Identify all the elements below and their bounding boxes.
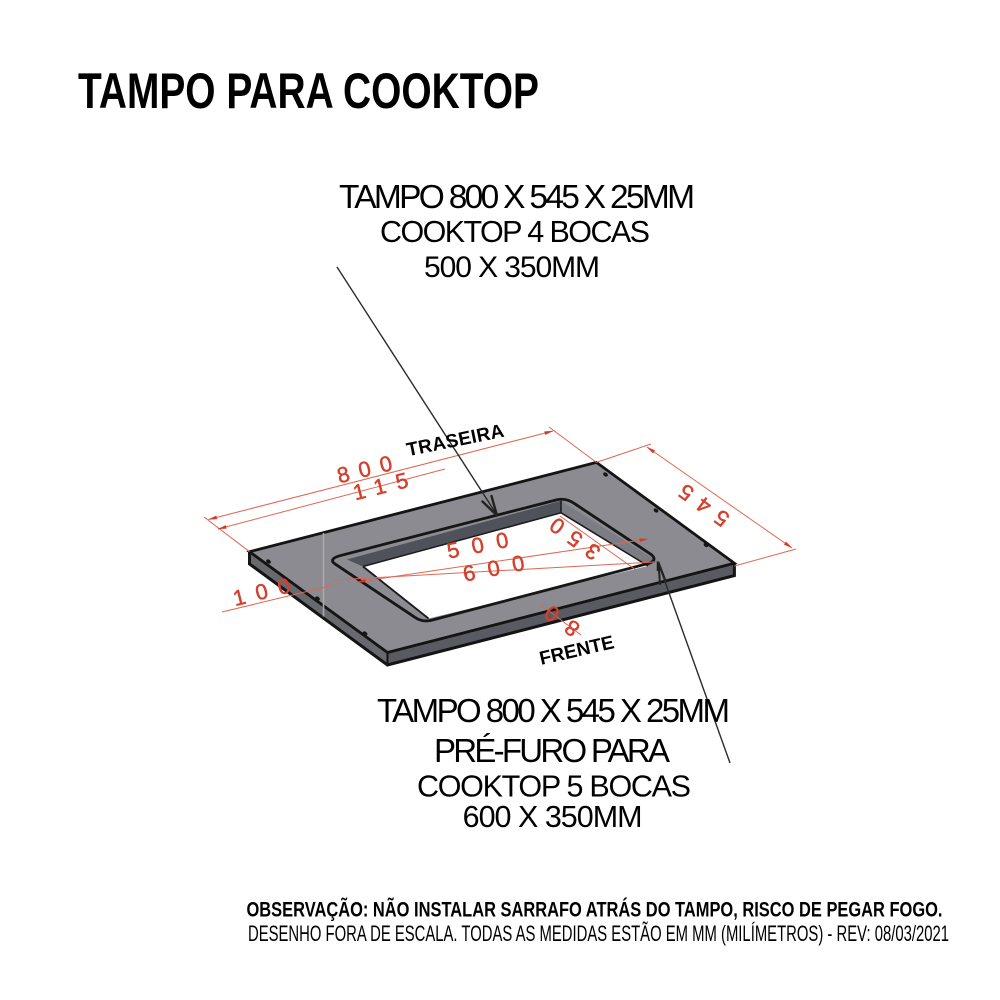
svg-text:DESENHO FORA DE ESCALA. TODAS: DESENHO FORA DE ESCALA. TODAS AS MEDIDAS… [248,921,949,946]
svg-text:TAMPO 800 X 545 X 25MM: TAMPO 800 X 545 X 25MM [339,179,695,216]
svg-text:500 X 350MM: 500 X 350MM [424,251,600,284]
svg-text:OBSERVAÇÃO: NÃO INSTALAR SARRA: OBSERVAÇÃO: NÃO INSTALAR SARRAFO ATRÁS D… [247,899,943,922]
svg-text:TAMPO PARA COOKTOP: TAMPO PARA COOKTOP [78,63,539,119]
svg-text:600 X 350MM: 600 X 350MM [463,800,643,834]
svg-text:TAMPO 800 X 545 X 25MM: TAMPO 800 X 545 X 25MM [377,692,730,729]
svg-text:COOKTOP 4 BOCAS: COOKTOP 4 BOCAS [380,215,650,249]
svg-text:PRÉ-FURO PARA: PRÉ-FURO PARA [434,732,670,769]
svg-text:COOKTOP 5 BOCAS: COOKTOP 5 BOCAS [417,770,691,804]
